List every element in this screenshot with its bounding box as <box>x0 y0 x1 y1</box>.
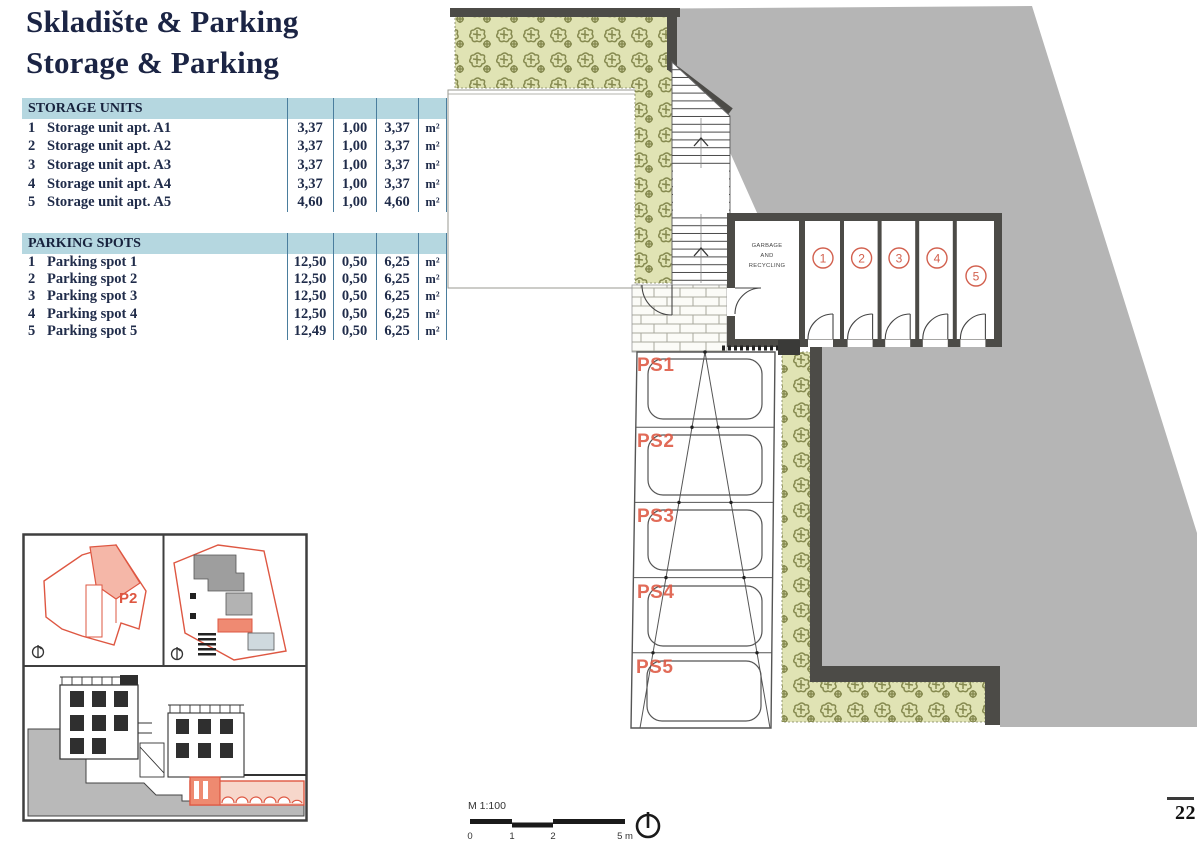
row-area: 12,50 <box>287 288 333 305</box>
table-row: 2 Parking spot 2 12,50 0,50 6,25 m² <box>22 271 447 288</box>
row-coefficient: 0,50 <box>333 306 376 323</box>
row-total: 3,37 <box>376 176 418 193</box>
wall-pillar <box>778 340 800 355</box>
column-divider <box>376 98 377 212</box>
scale-bar-segments <box>470 819 625 828</box>
row-label: Storage unit apt. A5 <box>47 194 287 211</box>
column-divider <box>376 233 377 340</box>
row-number: 4 <box>22 176 47 193</box>
row-label: Parking spot 1 <box>47 254 287 271</box>
row-coefficient: 1,00 <box>333 176 376 193</box>
scale-tick: 2 <box>550 831 555 842</box>
unit-number: 2 <box>858 252 865 266</box>
row-coefficient: 1,00 <box>333 120 376 137</box>
row-number: 5 <box>22 194 47 211</box>
title-croatian: Skladište & Parking <box>26 1 299 42</box>
column-divider <box>287 98 288 212</box>
row-total: 3,37 <box>376 120 418 137</box>
north-icon <box>637 812 659 837</box>
row-area: 12,50 <box>287 271 333 288</box>
table-row: 3 Parking spot 3 12,50 0,50 6,25 m² <box>22 288 447 305</box>
brochure-page: { "page": { "title_line1": "Skladište & … <box>0 0 1200 848</box>
floor-plan: GARBAGE AND RECYCLING 1 2 3 4 5 <box>440 0 1200 760</box>
table-row: 5 Storage unit apt. A5 4,60 1,00 4,60 m² <box>22 193 447 212</box>
page-number-rule <box>1167 797 1194 800</box>
table-row: 4 Storage unit apt. A4 3,37 1,00 3,37 m² <box>22 175 447 194</box>
row-number: 5 <box>22 323 47 340</box>
row-coefficient: 1,00 <box>333 138 376 155</box>
parking-spot-label: PS3 <box>637 506 674 527</box>
row-label: Storage unit apt. A2 <box>47 138 287 155</box>
page-number: 22 <box>1150 797 1196 825</box>
row-area: 4,60 <box>287 194 333 211</box>
column-divider <box>418 98 419 212</box>
page-title: Skladište & Parking Storage & Parking <box>26 1 299 83</box>
row-label: Parking spot 3 <box>47 288 287 305</box>
row-area: 12,49 <box>287 323 333 340</box>
svg-text:AND: AND <box>760 253 773 259</box>
row-coefficient: 0,50 <box>333 254 376 271</box>
row-label: Parking spot 5 <box>47 323 287 340</box>
table-row: 3 Storage unit apt. A3 3,37 1,00 3,37 m² <box>22 156 447 175</box>
parking-spot-label: PS4 <box>637 582 674 603</box>
parking-area: PS1 PS2 PS3 PS4 PS5 <box>631 350 775 728</box>
parking-spot-label: PS2 <box>637 431 674 452</box>
paved-entrance <box>632 285 727 352</box>
parking-spot-label: PS1 <box>637 355 674 376</box>
svg-text:RECYCLING: RECYCLING <box>749 263 786 269</box>
location-inset: P2 <box>22 533 308 822</box>
storage-units-table: STORAGE UNITS 1 Storage unit apt. A1 3,3… <box>22 98 447 212</box>
row-label: Parking spot 2 <box>47 271 287 288</box>
row-area: 12,50 <box>287 254 333 271</box>
scale-tick: 0 <box>467 831 472 842</box>
parking-spot-label: PS5 <box>636 657 673 678</box>
unit-number: 5 <box>973 270 980 284</box>
unit-number: 4 <box>934 252 941 266</box>
table-row: 2 Storage unit apt. A2 3,37 1,00 3,37 m² <box>22 138 447 157</box>
svg-text:GARBAGE: GARBAGE <box>752 243 783 249</box>
row-label: Parking spot 4 <box>47 306 287 323</box>
ground-floor-room <box>448 90 637 288</box>
row-label: Storage unit apt. A4 <box>47 176 287 193</box>
row-total: 4,60 <box>376 194 418 211</box>
table-row: 5 Parking spot 5 12,49 0,50 6,25 m² <box>22 323 447 340</box>
row-coefficient: 0,50 <box>333 288 376 305</box>
table-row: 4 Parking spot 4 12,50 0,50 6,25 m² <box>22 306 447 323</box>
row-total: 3,37 <box>376 138 418 155</box>
row-total: 6,25 <box>376 323 418 340</box>
parking-spots-table: PARKING SPOTS 1 Parking spot 1 12,50 0,5… <box>22 233 447 340</box>
row-area: 3,37 <box>287 120 333 137</box>
row-number: 2 <box>22 271 47 288</box>
table-header: STORAGE UNITS <box>22 98 447 119</box>
unit-number: 3 <box>896 252 903 266</box>
row-total: 6,25 <box>376 271 418 288</box>
row-number: 4 <box>22 306 47 323</box>
column-divider <box>418 233 419 340</box>
storage-level-highlight <box>190 777 304 805</box>
row-total: 6,25 <box>376 288 418 305</box>
table-header: PARKING SPOTS <box>22 233 447 254</box>
column-divider <box>333 233 334 340</box>
scale-tick: 5 m <box>617 831 633 842</box>
row-coefficient: 0,50 <box>333 271 376 288</box>
row-number: 1 <box>22 254 47 271</box>
row-area: 12,50 <box>287 306 333 323</box>
table-row: 1 Parking spot 1 12,50 0,50 6,25 m² <box>22 254 447 271</box>
unit-number: 1 <box>820 252 827 266</box>
table-row: 1 Storage unit apt. A1 3,37 1,00 3,37 m² <box>22 119 447 138</box>
row-number: 1 <box>22 120 47 137</box>
row-total: 6,25 <box>376 254 418 271</box>
row-coefficient: 0,50 <box>333 323 376 340</box>
row-coefficient: 1,00 <box>333 194 376 211</box>
row-number: 3 <box>22 288 47 305</box>
column-divider <box>287 233 288 340</box>
row-label: Storage unit apt. A3 <box>47 157 287 174</box>
row-coefficient: 1,00 <box>333 157 376 174</box>
row-label: Storage unit apt. A1 <box>47 120 287 137</box>
row-number: 3 <box>22 157 47 174</box>
row-total: 3,37 <box>376 157 418 174</box>
row-total: 6,25 <box>376 306 418 323</box>
title-english: Storage & Parking <box>26 42 299 83</box>
row-area: 3,37 <box>287 157 333 174</box>
row-number: 2 <box>22 138 47 155</box>
scale-label: M 1:100 <box>468 800 506 812</box>
row-area: 3,37 <box>287 138 333 155</box>
row-area: 3,37 <box>287 176 333 193</box>
column-divider <box>333 98 334 212</box>
scale-tick: 1 <box>509 831 514 842</box>
building-highlight <box>218 619 252 632</box>
parcel-label: P2 <box>119 590 137 607</box>
scale-bar: M 1:100 0 1 2 5 m <box>455 795 685 845</box>
